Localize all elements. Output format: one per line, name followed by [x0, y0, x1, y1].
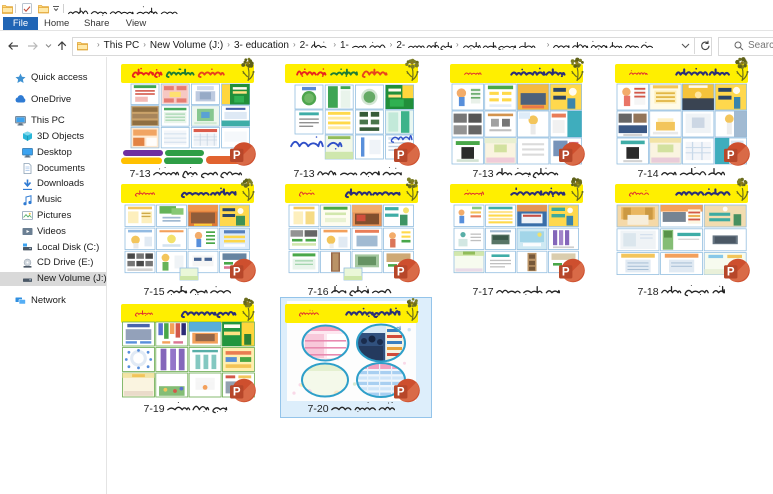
svg-text:P: P: [562, 267, 570, 279]
svg-text:P: P: [727, 150, 735, 162]
svg-text:P: P: [397, 267, 405, 279]
svg-text:P: P: [397, 387, 405, 399]
svg-text:P: P: [233, 150, 241, 162]
svg-text:P: P: [233, 387, 241, 399]
svg-text:P: P: [397, 150, 405, 162]
svg-text:P: P: [727, 267, 735, 279]
svg-text:P: P: [233, 267, 241, 279]
svg-text:P: P: [562, 150, 570, 162]
